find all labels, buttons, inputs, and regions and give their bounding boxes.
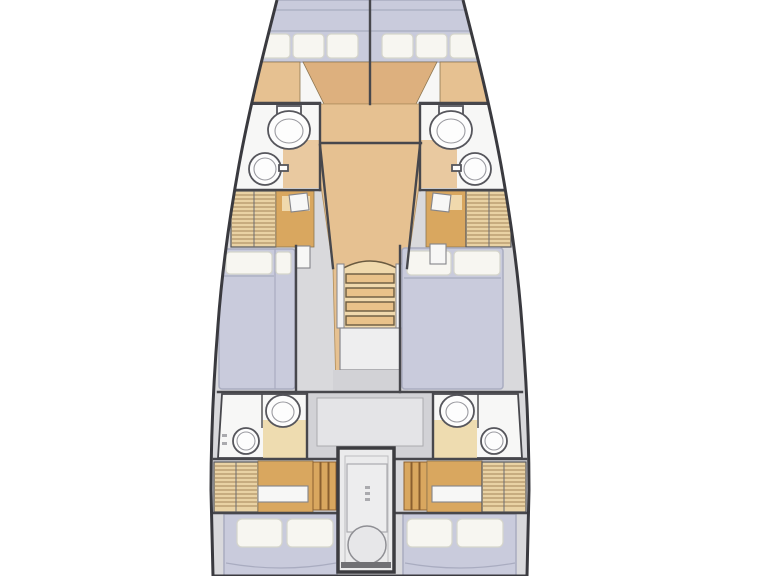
saloon-table-area — [317, 398, 423, 446]
pillow-icon — [226, 252, 272, 274]
pillow-icon — [407, 519, 452, 547]
port-bow-desk — [247, 62, 300, 103]
slatted-locker — [404, 462, 427, 510]
engine-label-marks — [365, 486, 370, 501]
aft-cabin-starboard — [403, 514, 516, 576]
door-hinge-mark — [222, 442, 227, 445]
engine-access-circle — [348, 526, 386, 564]
engine-compartment-icon — [338, 448, 394, 572]
aft-head-starboard — [433, 394, 522, 458]
pillow-icon — [293, 34, 324, 58]
starboard-aft-shelf — [432, 486, 482, 502]
aft-cabin-port — [224, 514, 337, 576]
port-aft-shelf — [258, 486, 308, 502]
yacht-floor-plan — [0, 0, 768, 576]
companionway-landing — [340, 328, 400, 370]
slatted-locker — [313, 462, 336, 510]
floor-plan-canvas — [0, 0, 768, 576]
pillow-icon — [457, 519, 503, 547]
saloon-entry-floor — [333, 370, 408, 392]
sink-faucet — [452, 165, 461, 171]
starboard-bow-desk — [440, 62, 493, 103]
wardrobe-hatch-lines — [232, 191, 275, 247]
stair-rail-port — [337, 264, 344, 328]
door-hinge-mark — [222, 434, 227, 437]
pillow-icon — [382, 34, 413, 58]
wardrobe-hatch-lines — [467, 191, 510, 247]
pillow-icon — [276, 252, 291, 274]
pillow-icon — [454, 251, 500, 275]
port-head-doorstep — [289, 193, 309, 212]
starboard-head-doorstep — [431, 193, 451, 212]
aft-head-port — [218, 394, 307, 458]
pillow-icon — [416, 34, 447, 58]
pillow-icon — [287, 519, 333, 547]
forward-head-port — [234, 104, 320, 190]
engine-box-sill — [341, 562, 391, 568]
mid-cabin-starboard — [402, 244, 503, 389]
sink-faucet — [279, 165, 288, 171]
pillow-icon — [237, 519, 282, 547]
forward-head-starboard — [420, 104, 506, 190]
nightstand — [296, 246, 310, 268]
pillow-icon — [327, 34, 358, 58]
nightstand — [430, 244, 446, 264]
